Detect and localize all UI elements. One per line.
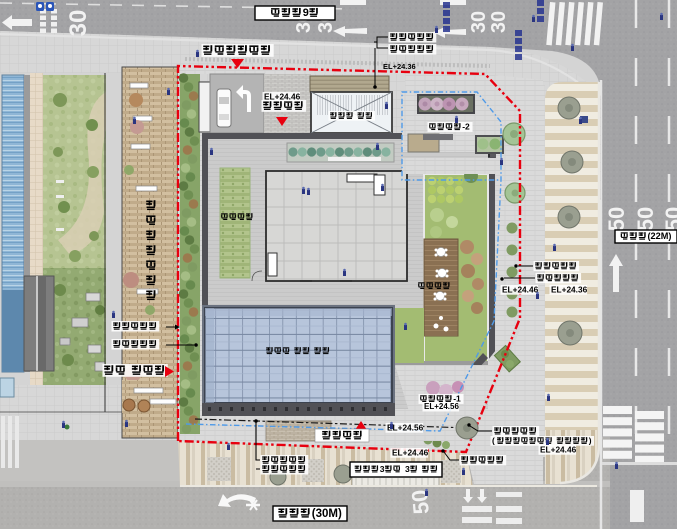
svg-text:3: 3 bbox=[405, 464, 410, 474]
svg-text:50: 50 bbox=[407, 489, 434, 516]
svg-text:50: 50 bbox=[633, 207, 658, 231]
svg-text:EL+24.56: EL+24.56 bbox=[424, 402, 459, 411]
svg-text:(: ( bbox=[492, 435, 495, 445]
svg-text:30: 30 bbox=[488, 11, 510, 33]
svg-text:9: 9 bbox=[303, 7, 309, 19]
svg-text:30: 30 bbox=[468, 11, 490, 33]
svg-text:EL+24.36: EL+24.36 bbox=[551, 284, 588, 294]
svg-text:(30M): (30M) bbox=[312, 508, 342, 520]
svg-text:EL+24.46: EL+24.46 bbox=[540, 444, 577, 454]
svg-text:): ) bbox=[589, 435, 592, 445]
svg-text:EL+24.46: EL+24.46 bbox=[392, 447, 429, 457]
svg-text:EL+24.46: EL+24.46 bbox=[264, 91, 301, 101]
svg-text:30: 30 bbox=[65, 10, 92, 37]
svg-text:EL+24.36: EL+24.36 bbox=[383, 62, 416, 71]
svg-text:50: 50 bbox=[661, 207, 677, 231]
svg-text:50: 50 bbox=[604, 207, 629, 231]
svg-text:EL+24.46: EL+24.46 bbox=[502, 284, 539, 294]
svg-text:(22M): (22M) bbox=[647, 231, 671, 241]
svg-text:-2: -2 bbox=[462, 122, 470, 132]
svg-text:3: 3 bbox=[380, 464, 385, 474]
